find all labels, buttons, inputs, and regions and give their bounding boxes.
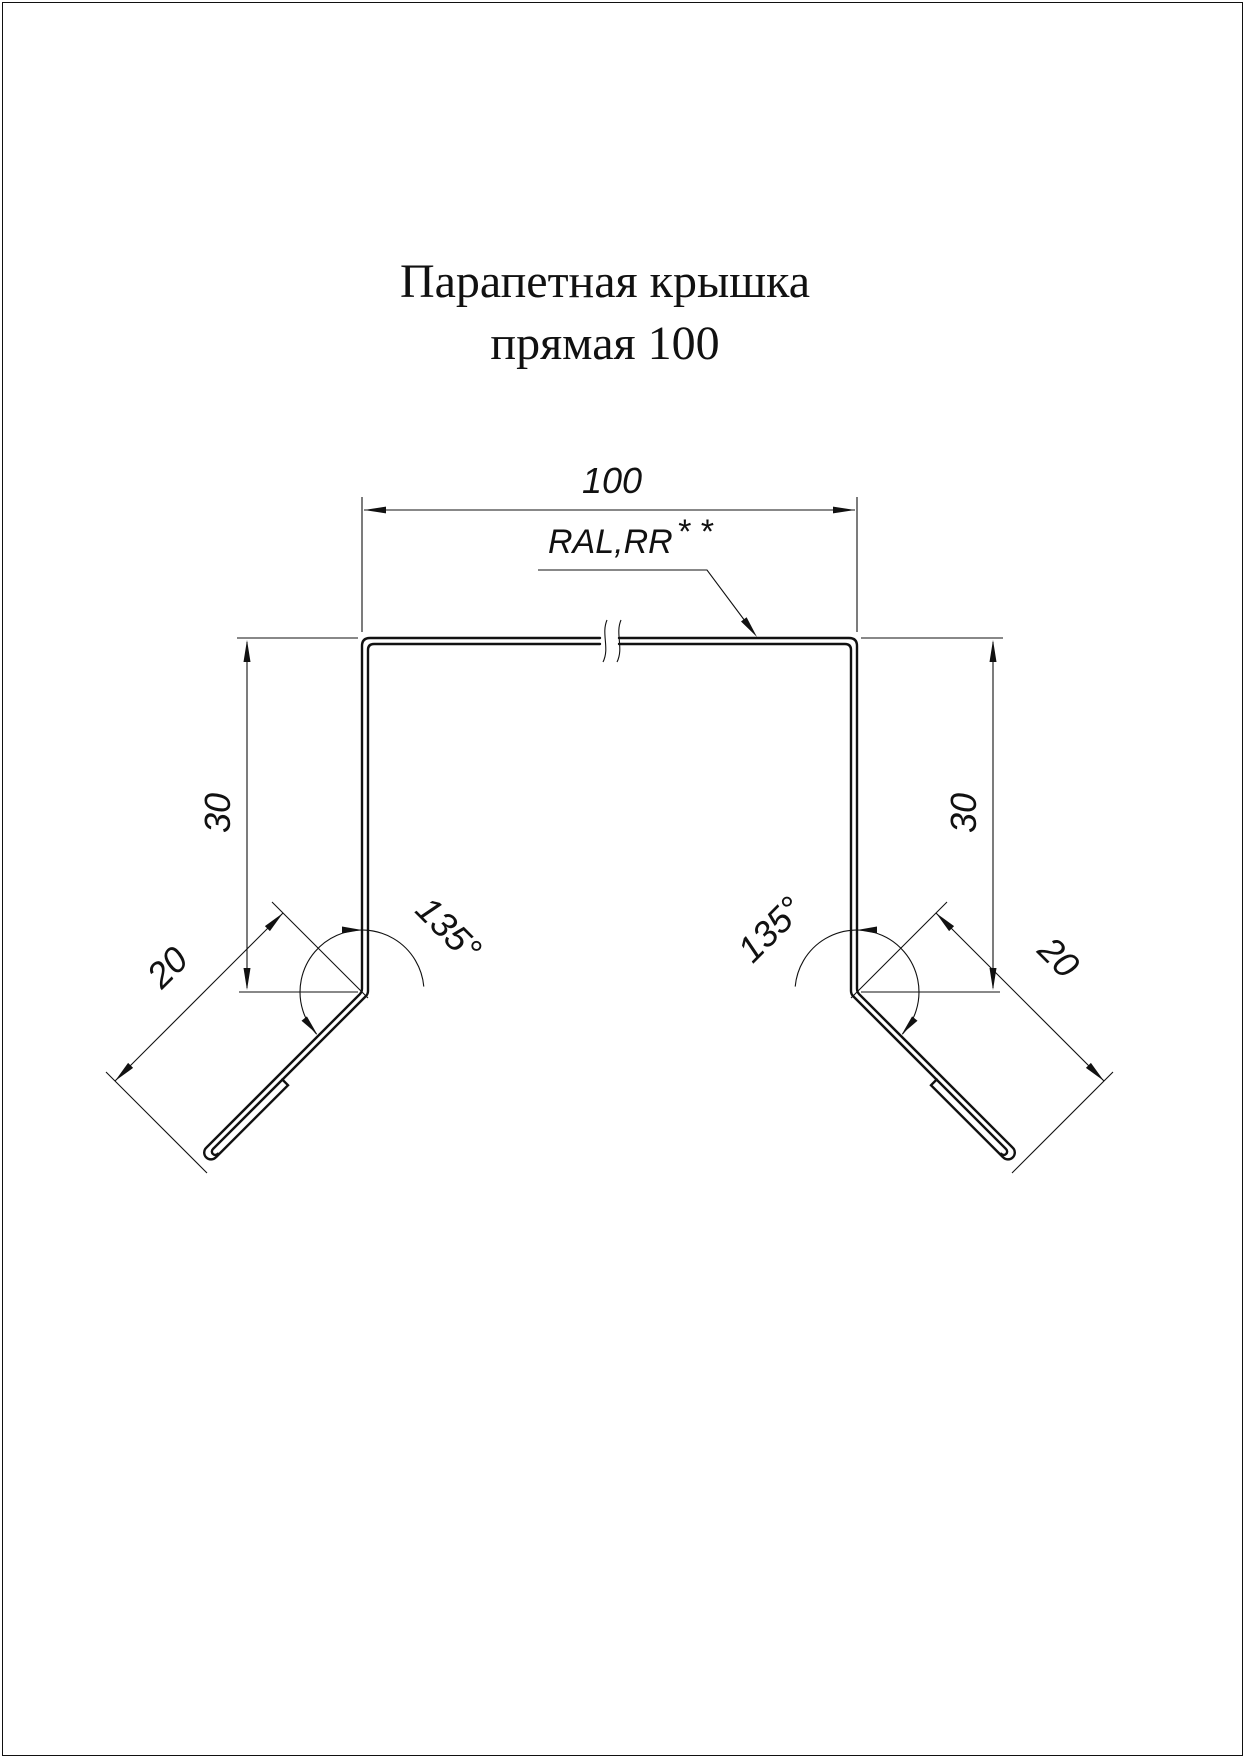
profile-right-inner [619,644,1007,1155]
parapet-cap-drawing: Парапетная крышка прямая 100 100 [0,0,1245,1758]
profile-left-inner [212,644,600,1155]
extension-line [851,902,947,998]
coating-label-stars: * * [677,513,715,551]
arrowhead-right [833,507,855,514]
profile-left-outer [204,638,600,1159]
drawing-title: Парапетная крышка прямая 100 [400,255,810,370]
leader-arrowhead [741,617,757,637]
dimension-line [936,913,1104,1081]
dimension-side-height-right: 30 [861,638,1003,992]
title-line-2: прямая 100 [490,317,719,370]
arrowhead-se [1086,1063,1104,1081]
arrowhead-on-drip [902,1016,918,1034]
angle-value-left: 135° [408,888,490,970]
coating-label: RAL,RR* * [548,513,714,561]
drawing-page: Парапетная крышка прямая 100 100 [0,0,1245,1758]
arrowhead-on-wall [857,927,877,934]
arrowhead-on-drip [302,1016,318,1034]
dimension-value-30-right: 30 [943,793,984,833]
arrowhead-down [990,968,997,990]
dimension-drip-left: 20 [106,902,368,1173]
dimension-line [115,913,283,1081]
angle-value-right: 135° [729,888,811,970]
arrowhead-up [244,640,251,662]
extension-line [1012,1072,1113,1173]
angle-dimension-right: 135° [729,888,919,1034]
arrowhead-sw [115,1063,133,1081]
leader-line [538,570,748,625]
arrowhead-down [244,968,251,990]
dimension-side-height-left: 30 [197,638,358,992]
coating-label-main: RAL,RR [548,523,673,561]
break-symbol-right-curve [617,620,621,662]
arrowhead-up [990,640,997,662]
title-line-1: Парапетная крышка [400,255,810,308]
dimension-value-20-right: 20 [1029,928,1087,986]
extension-line [272,902,368,998]
arrowhead-nw [936,913,954,931]
profile-right-outer [619,638,1015,1159]
break-symbol-left-curve [603,620,607,662]
profile-outline [204,620,1015,1159]
dimension-drip-right: 20 [851,902,1113,1173]
arrowhead-on-wall [342,927,362,934]
coating-label-leader: RAL,RR* * [538,513,757,637]
dimension-value-100: 100 [582,460,642,501]
extension-line [106,1072,207,1173]
dimension-value-20-left: 20 [138,939,196,997]
angle-dimension-left: 135° [300,888,490,1034]
arrowhead-ne [265,913,283,931]
dimension-value-30-left: 30 [197,793,238,833]
arrowhead-left [364,507,386,514]
